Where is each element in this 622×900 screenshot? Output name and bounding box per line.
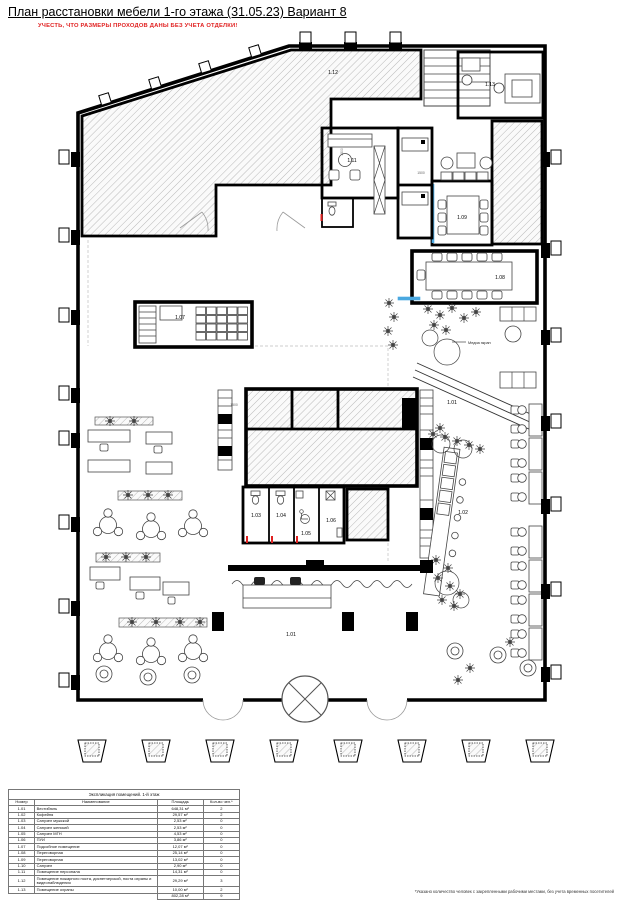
media-wall-cap (306, 560, 324, 565)
glass-corner (399, 298, 419, 299)
locker-strip-right (420, 390, 433, 558)
table-row: 1.12Помещение пожарного поста, диспетчер… (9, 876, 240, 887)
room-label-1-01-upper: 1.01 (447, 400, 457, 406)
room-label-1-07: 1.07 (175, 315, 185, 321)
plants-lounge (422, 303, 481, 365)
table-title: Экспликация помещений. 1-й этаж (9, 790, 240, 800)
dim-text-1: 1500 (417, 171, 425, 175)
facade-columns (78, 740, 554, 762)
total-people: 9 (203, 893, 239, 899)
room-label-1-12: 1.12 (328, 70, 338, 76)
zone-core (246, 389, 417, 486)
zone-right-band (492, 121, 542, 244)
locker-strip-left (218, 390, 232, 470)
floor-plan: 1.12 1.13 1.11 1.09 1.08 1.07 1.01 1.02 … (0, 0, 622, 790)
room-label-1-06: 1.06 (326, 518, 336, 524)
lounge-upper (441, 153, 492, 180)
room-label-1-05: 1.05 (301, 531, 311, 537)
plants-corridor (383, 298, 399, 350)
window-tables (511, 404, 542, 660)
floor-plan-area: 1.12 1.13 1.11 1.09 1.08 1.07 1.01 1.02 … (0, 0, 622, 790)
room-1-10 (322, 198, 353, 227)
zone-wc-right (347, 489, 388, 540)
dim-text-3: 1500 (340, 148, 344, 156)
total-area: 802,28 м² (157, 893, 203, 899)
wc-fixtures (251, 491, 342, 537)
desks-left (88, 430, 189, 604)
room-label-1-09: 1.09 (457, 215, 467, 221)
room-label-1-01-lower: 1.01 (286, 632, 296, 638)
room-table-body: 1.01Вестибюль648,31 м²21.02Кофейня29,57 … (9, 806, 240, 893)
media-screen-label: Медиа экран (468, 341, 491, 345)
toilet-1-10 (328, 202, 336, 215)
room-label-1-13: 1.13 (485, 82, 495, 88)
room-label-1-08: 1.08 (495, 275, 505, 281)
room-schedule-table: Экспликация помещений. 1-й этаж Номер На… (8, 789, 240, 900)
media-wall (228, 565, 420, 571)
bench-right (500, 307, 536, 388)
reception-desk (243, 577, 331, 608)
shelf-cross (374, 146, 385, 214)
drawing-sheet: План расстановки мебели 1-го этажа (31.0… (0, 0, 622, 900)
dim-text-2: 1500 (230, 403, 238, 407)
room-label-1-02: 1.02 (458, 510, 468, 516)
fire-door-mark (321, 214, 323, 221)
lockers-1-07 (139, 306, 248, 343)
room-label-1-03: 1.03 (251, 513, 261, 519)
room-label-1-11: 1.11 (347, 158, 357, 164)
people-count-footnote: *Указано количество человек с закрепленн… (415, 889, 614, 894)
room-label-1-04: 1.04 (276, 513, 286, 519)
revolving-door (282, 676, 328, 722)
sofa-1-11 (328, 134, 372, 180)
